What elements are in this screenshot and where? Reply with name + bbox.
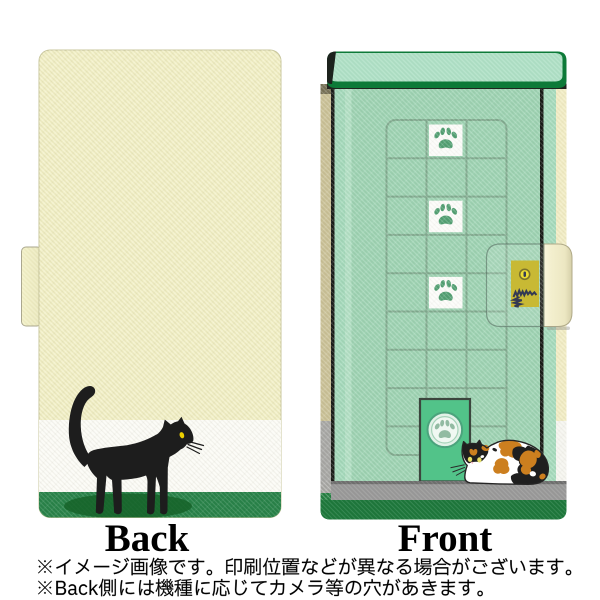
svg-text:Back: Back <box>105 517 190 560</box>
svg-text:Front: Front <box>398 517 493 560</box>
